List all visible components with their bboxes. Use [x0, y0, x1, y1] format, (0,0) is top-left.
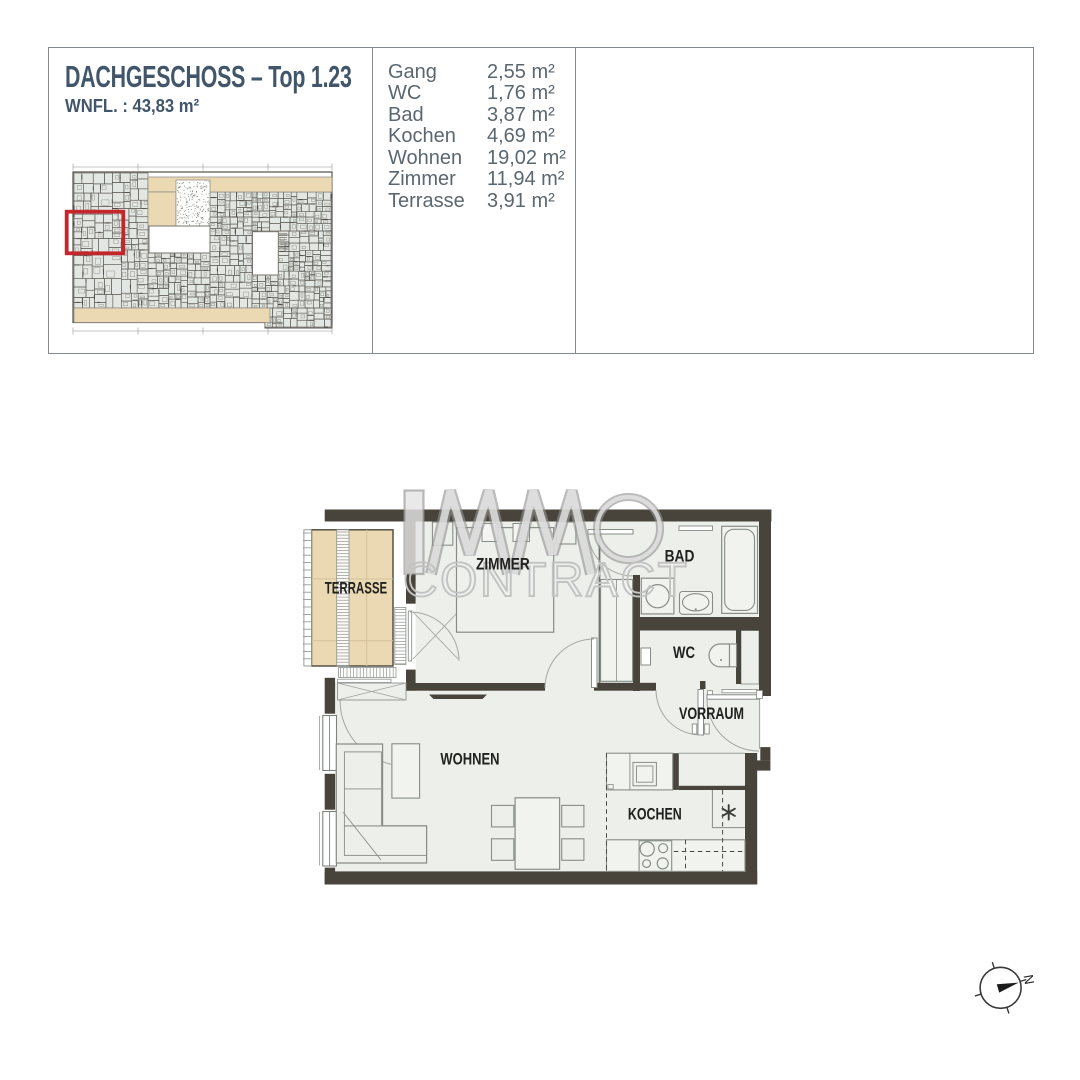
svg-text:KOCHEN: KOCHEN — [628, 805, 682, 823]
svg-text:WC: WC — [673, 644, 695, 662]
svg-text:VORRAUM: VORRAUM — [679, 705, 744, 723]
svg-text:BAD: BAD — [665, 548, 695, 566]
svg-text:CONTRACT: CONTRACT — [403, 554, 687, 607]
svg-text:ZIMMER: ZIMMER — [476, 555, 530, 573]
svg-text:TERRASSE: TERRASSE — [325, 579, 388, 597]
svg-text:N: N — [1021, 973, 1037, 985]
svg-text:WOHNEN: WOHNEN — [440, 751, 499, 769]
